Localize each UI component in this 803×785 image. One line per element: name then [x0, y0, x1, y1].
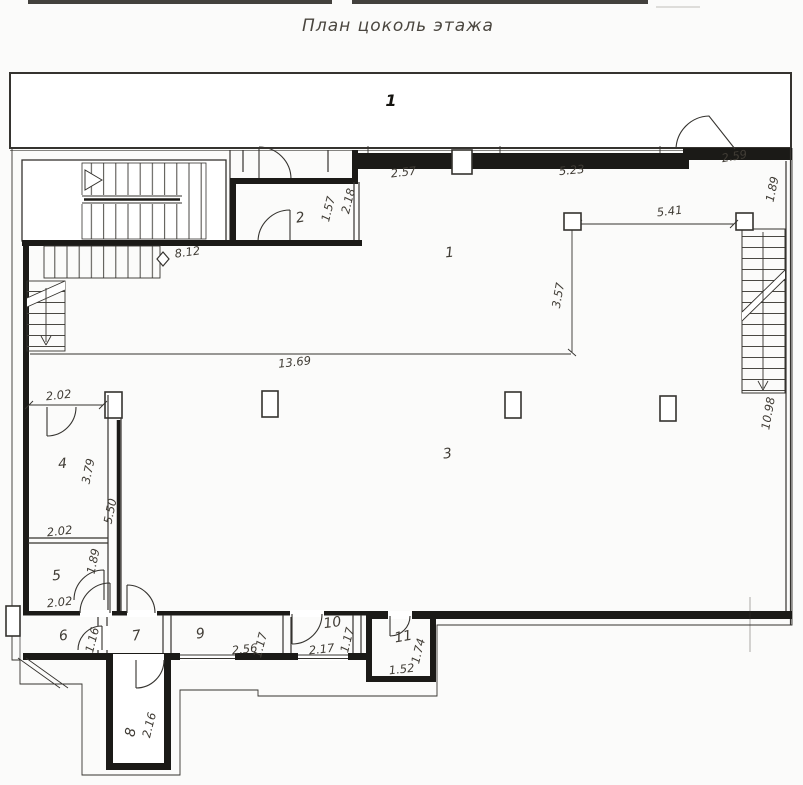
- room-11: 11 1.74 1.52: [366, 611, 436, 682]
- door-arc-vestibule: [259, 147, 291, 179]
- dim-room5-bottom: 2.02: [46, 594, 73, 611]
- dim-left-stair: 8.12: [174, 243, 201, 260]
- rooms-4-5: 2.02 4 3.79 5.50 2.02 5 1.89 2.02: [25, 387, 121, 611]
- column-mid: [564, 213, 581, 230]
- dim-room2-height: 2.18: [338, 187, 358, 215]
- dim-partition-height: 5.50: [101, 497, 120, 525]
- room-label-9: 9: [195, 625, 206, 642]
- room-label-10: 10: [323, 614, 343, 632]
- dim-top-wall-left: 2.57: [390, 163, 418, 180]
- dim-right-stair: 10.98: [758, 396, 778, 431]
- dim-columns-span: 5.41: [656, 203, 683, 220]
- door-arc-a: [80, 583, 110, 613]
- dim-top-wall-right: 5.23: [558, 162, 585, 178]
- column-stair-right: [736, 213, 753, 230]
- column-2: [262, 391, 278, 417]
- room-label-7: 7: [131, 627, 142, 644]
- dim-right-upper: 1.89: [763, 175, 782, 203]
- wall-right: [786, 148, 791, 625]
- room-2: 2 1.57 2.18: [230, 150, 359, 244]
- room-8-protrusion: 8 2.16: [106, 653, 171, 770]
- scan-edge-artifact: [28, 2, 700, 7]
- room-1-hall: 1 13.69: [22, 240, 571, 613]
- floor-plan-drawing: План цоколь этажа 1 2 1.57 2.18 2: [0, 0, 803, 785]
- staircase-right: 10.98: [736, 213, 785, 431]
- door-arc-room2: [258, 210, 290, 242]
- bottom-row: 6 1.16 7 9 2.56 1.17 10 2.17 1.17: [23, 583, 792, 661]
- dim-entry-door: 2.59: [720, 147, 748, 165]
- dim-room2-width: 1.57: [318, 194, 338, 223]
- room-label-3: 3: [442, 445, 453, 462]
- floor-plan-page: План цоколь этажа 1 2 1.57 2.18 2: [0, 0, 803, 785]
- exterior-pilaster: [6, 606, 20, 636]
- column-pier-top: [452, 150, 472, 174]
- dim-column-drop: 3.57: [549, 281, 567, 309]
- dim-hall-length: 13.69: [277, 353, 311, 370]
- band-room-label: 1: [385, 91, 396, 110]
- dim-room4-height: 3.79: [79, 457, 98, 485]
- room-label-5: 5: [52, 568, 62, 585]
- dim-room11-width: 1.52: [388, 661, 415, 678]
- door-arc-room4: [47, 407, 76, 436]
- room-label-11: 11: [393, 628, 413, 647]
- columns-dimension: 5.41 3.57: [549, 203, 738, 356]
- room-label-1: 1: [445, 245, 455, 262]
- dim-room4-bottom: 2.02: [46, 523, 73, 540]
- door-arc-room10: [292, 614, 322, 644]
- staircase-top-left: [22, 160, 226, 241]
- top-band: 1: [10, 73, 791, 151]
- dim-room10-width: 2.17: [308, 641, 336, 658]
- room-label-2: 2: [295, 209, 307, 226]
- column-3: [505, 392, 521, 418]
- column-4: [660, 396, 676, 421]
- vestibule-top: [230, 147, 328, 240]
- exterior-ramp-marks: [18, 658, 68, 688]
- dim-room5-height: 1.89: [84, 547, 103, 575]
- door-arc-b: [127, 585, 155, 613]
- room-label-6: 6: [58, 627, 69, 644]
- room-label-4: 4: [58, 456, 68, 473]
- plan-title: План цоколь этажа: [302, 16, 494, 36]
- columns-row: [105, 391, 676, 421]
- dim-room4-top: 2.02: [45, 387, 72, 404]
- staircase-left: 8.12: [27, 243, 201, 351]
